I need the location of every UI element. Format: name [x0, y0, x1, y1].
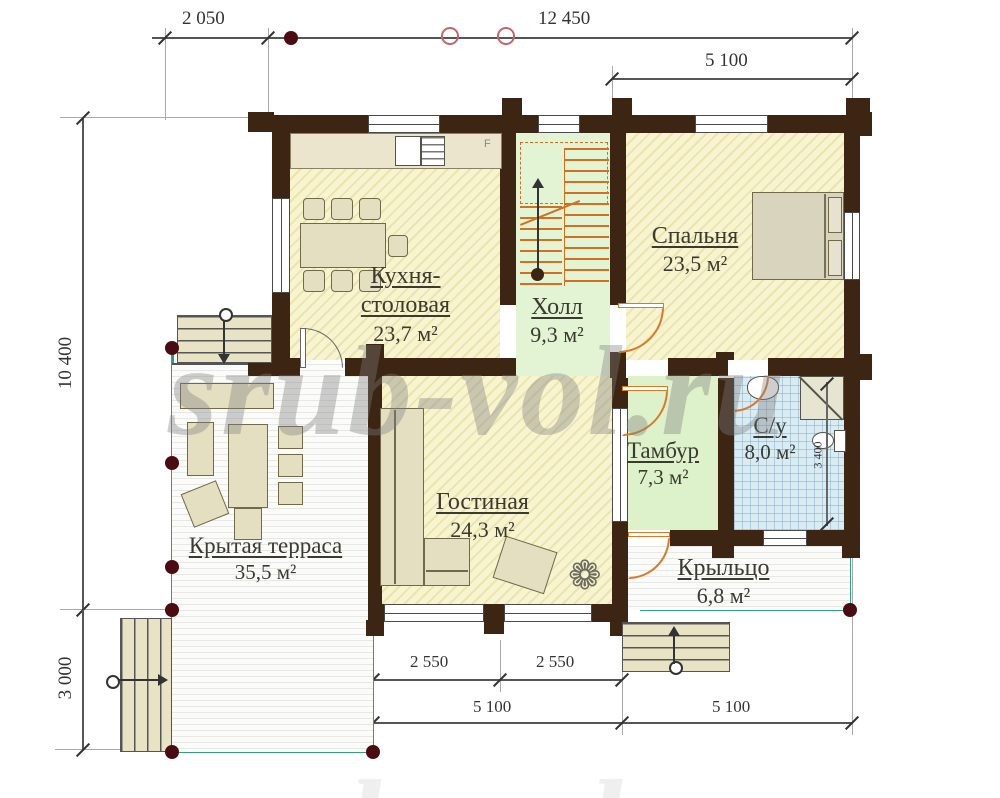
terrace-sofa [187, 422, 214, 476]
room-area: 24,3 м² [425, 517, 540, 544]
corner-marker [165, 456, 179, 470]
axis-marker-circle [497, 27, 515, 45]
extension-line [500, 640, 501, 692]
chair [331, 198, 353, 220]
log-end [484, 620, 504, 634]
room-name: Тамбур [608, 437, 718, 465]
tambour-label: Тамбур 7,3 м² [608, 437, 718, 491]
corner-marker [366, 745, 380, 759]
room-area: 7,3 м² [608, 465, 718, 491]
axis-marker-circle [441, 27, 459, 45]
stair-flight [564, 148, 609, 286]
room-area: 23,7 м² [338, 321, 473, 348]
steps-arrow [118, 679, 160, 681]
wall-segment [580, 115, 695, 133]
wall-segment [610, 352, 626, 378]
window [538, 115, 580, 133]
dimension-line-bottom-outer [373, 722, 852, 724]
corner-marker [165, 603, 179, 617]
stair-start-dot [531, 268, 544, 281]
steps-arrowhead [668, 626, 680, 636]
floor-plan: 2 050 12 450 5 100 10 400 3 000 2 550 2 … [0, 0, 1000, 798]
terrace-chair [278, 482, 303, 505]
dimension-label-left-lower: 3 000 [55, 657, 77, 700]
wall-segment [844, 280, 860, 546]
corner-marker [165, 341, 179, 355]
steps-start-circle [669, 661, 683, 675]
porch-label: Крыльцо 6,8 м² [666, 554, 781, 610]
sofa-section [424, 538, 470, 586]
log-end [612, 98, 632, 116]
corner-marker [843, 603, 857, 617]
terrace-sofa [180, 383, 274, 409]
sofa-section [380, 408, 424, 586]
wall-segment [272, 115, 368, 133]
pillow [828, 197, 842, 233]
room-name: Спальня [636, 222, 754, 251]
room-name: Крыльцо [666, 554, 781, 583]
room-area: 6,8 м² [666, 583, 781, 610]
stove-unit [421, 136, 445, 166]
log-end [248, 112, 274, 132]
plant-icon: ❁ [568, 556, 602, 596]
bathroom-label: С/у 8,0 м² [730, 412, 810, 466]
log-end [858, 354, 872, 380]
dimension-label-bottom-outer-left: 5 100 [473, 697, 511, 717]
wall-segment [612, 522, 628, 604]
room-name: Гостиная [425, 488, 540, 517]
room-name: столовая [338, 291, 473, 320]
wall-segment [272, 358, 300, 376]
toilet-tank [834, 430, 846, 452]
sink-unit [395, 136, 421, 166]
chair [359, 198, 381, 220]
steps-start-circle [219, 308, 233, 322]
corner-marker [165, 745, 179, 759]
dimension-label-top-total: 12 450 [538, 8, 590, 30]
room-area: 9,3 м² [502, 322, 612, 349]
window [384, 604, 484, 622]
chair [303, 270, 325, 292]
window [695, 115, 768, 133]
terrace-chair [278, 426, 303, 449]
dimension-line-bathroom [826, 382, 828, 526]
extension-line [165, 28, 166, 120]
extension-line [268, 28, 269, 116]
chair [388, 235, 408, 257]
steps-arrow [673, 632, 675, 664]
chair [303, 198, 325, 220]
log-end [502, 98, 522, 116]
room-area: 35,5 м² [183, 560, 348, 586]
steps-arrowhead [218, 354, 230, 364]
steps-start-circle [106, 675, 120, 689]
fridge-marker: F [484, 138, 491, 150]
log-end [856, 112, 872, 136]
dimension-label-bottom-inner-right: 2 550 [536, 652, 574, 672]
log-end [842, 544, 860, 558]
wall-segment [610, 133, 626, 305]
dimension-label-top-left: 2 050 [182, 8, 225, 30]
kitchen-label: Кухня- столовая 23,7 м² [338, 262, 473, 347]
room-name: Кухня- [338, 262, 473, 291]
stair-arrowhead [532, 178, 544, 188]
room-area: 23,5 м² [636, 251, 754, 278]
steps-arrow [223, 320, 225, 356]
pillow [828, 240, 842, 276]
dimension-line-top-right [612, 78, 852, 80]
room-name: Крытая терраса [183, 532, 348, 560]
window [272, 198, 290, 293]
watermark-bottom: srub-vol.ru [168, 752, 788, 798]
dimension-label-bottom-inner-left: 2 550 [410, 652, 448, 672]
log-end [366, 620, 384, 636]
terrace-label: Крытая терраса 35,5 м² [183, 532, 348, 586]
hall-label: Холл 9,3 м² [502, 293, 612, 349]
terrace-chair [278, 454, 303, 477]
wall-segment [272, 293, 290, 360]
extension-line [852, 548, 853, 735]
dimension-label-bottom-outer-right: 5 100 [712, 697, 750, 717]
wall-segment [500, 133, 516, 305]
dimension-label-top-right: 5 100 [705, 50, 748, 72]
room-area: 8,0 м² [730, 440, 810, 466]
window [504, 604, 592, 622]
window [368, 115, 440, 133]
axis-marker-filled [284, 31, 298, 45]
stair-arrow [537, 188, 539, 272]
sofa-seat-line [394, 410, 396, 584]
dimension-label-left-height: 10 400 [55, 337, 77, 389]
room-name: С/у [730, 412, 810, 440]
dimension-line-left-lower [82, 610, 84, 750]
dimension-line-left [82, 118, 84, 610]
wall-segment [440, 115, 538, 133]
extension-line [60, 117, 272, 118]
window [844, 212, 860, 280]
dimension-label-bathroom-depth: 3 400 [811, 442, 826, 469]
living-label: Гостиная 24,3 м² [425, 488, 540, 544]
steps-arrowhead [158, 674, 168, 686]
corner-marker [165, 560, 179, 574]
room-name: Холл [502, 293, 612, 322]
sofa-seat-line [426, 570, 468, 572]
terrace-table [228, 424, 268, 508]
log-end [716, 352, 734, 360]
bedroom-label: Спальня 23,5 м² [636, 222, 754, 278]
window [763, 530, 807, 546]
wall-segment [668, 358, 728, 376]
bed-divider [824, 194, 826, 278]
wall-segment [272, 133, 290, 198]
